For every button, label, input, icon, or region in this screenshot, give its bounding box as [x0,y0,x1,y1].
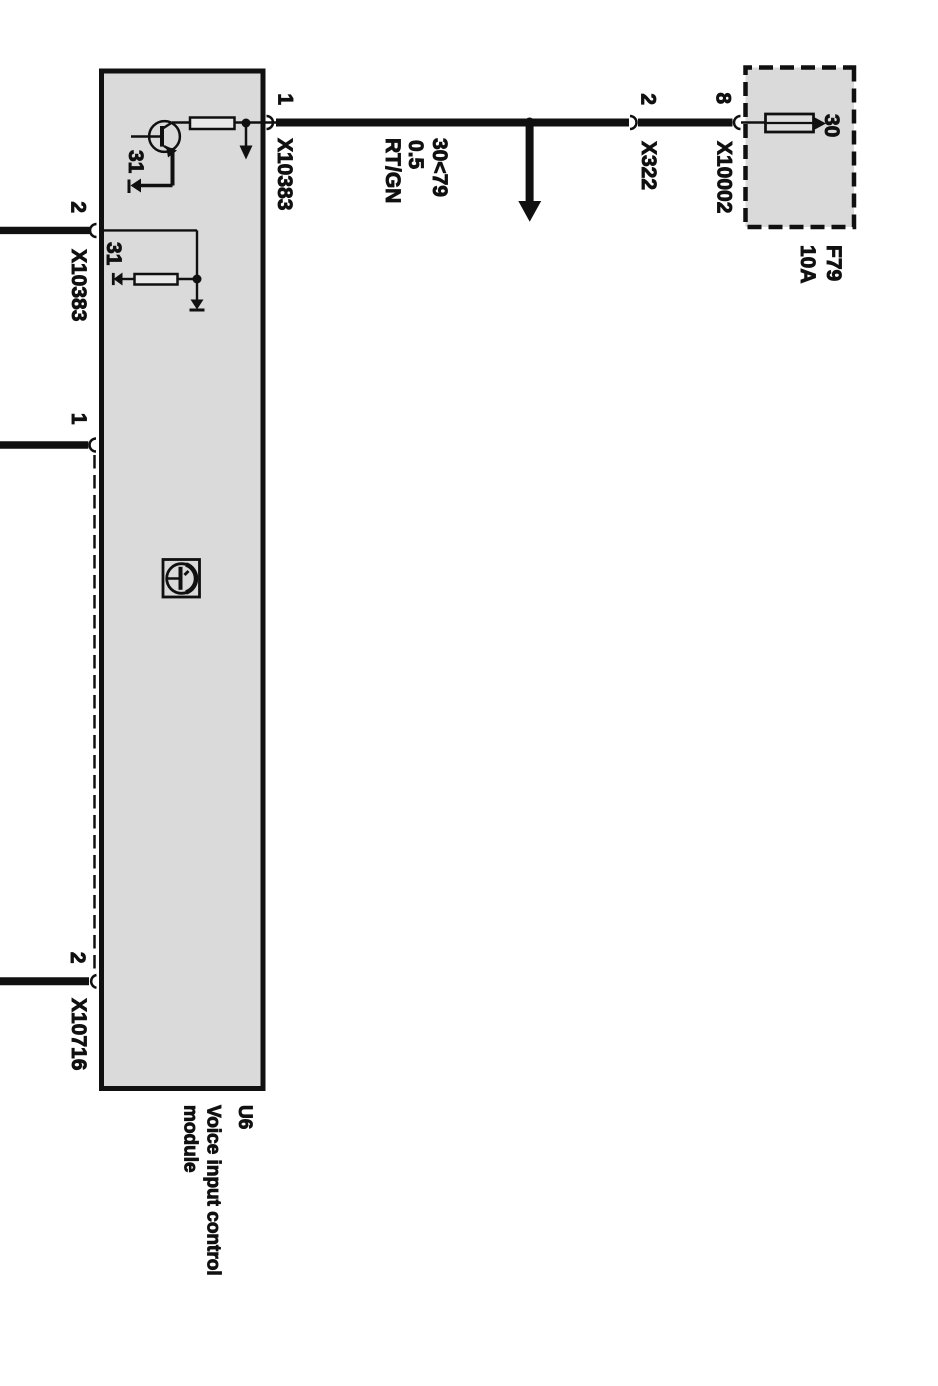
svg-text:10A: 10A [796,245,819,284]
svg-text:X10002: X10002 [713,141,736,213]
svg-text:31: 31 [102,242,125,266]
svg-text:RT/GN: RT/GN [381,138,404,203]
svg-text:2: 2 [66,952,89,964]
svg-text:U6: U6 [234,1105,255,1129]
svg-text:F79: F79 [822,245,845,281]
svg-text:1: 1 [67,413,90,425]
svg-text:module: module [180,1105,201,1173]
svg-text:X10383: X10383 [273,138,296,210]
svg-text:30<79: 30<79 [428,138,451,197]
svg-text:31: 31 [124,150,147,174]
svg-text:X10716: X10716 [67,998,90,1070]
svg-text:1: 1 [274,93,297,105]
svg-text:8: 8 [712,92,735,104]
svg-text:2: 2 [67,201,90,213]
svg-text:30: 30 [820,114,843,137]
svg-text:Voice input control: Voice input control [203,1105,224,1276]
svg-text:2: 2 [637,93,660,105]
svg-text:X322: X322 [637,141,660,190]
svg-text:X10383: X10383 [67,249,90,321]
svg-text:0.5: 0.5 [404,140,427,170]
